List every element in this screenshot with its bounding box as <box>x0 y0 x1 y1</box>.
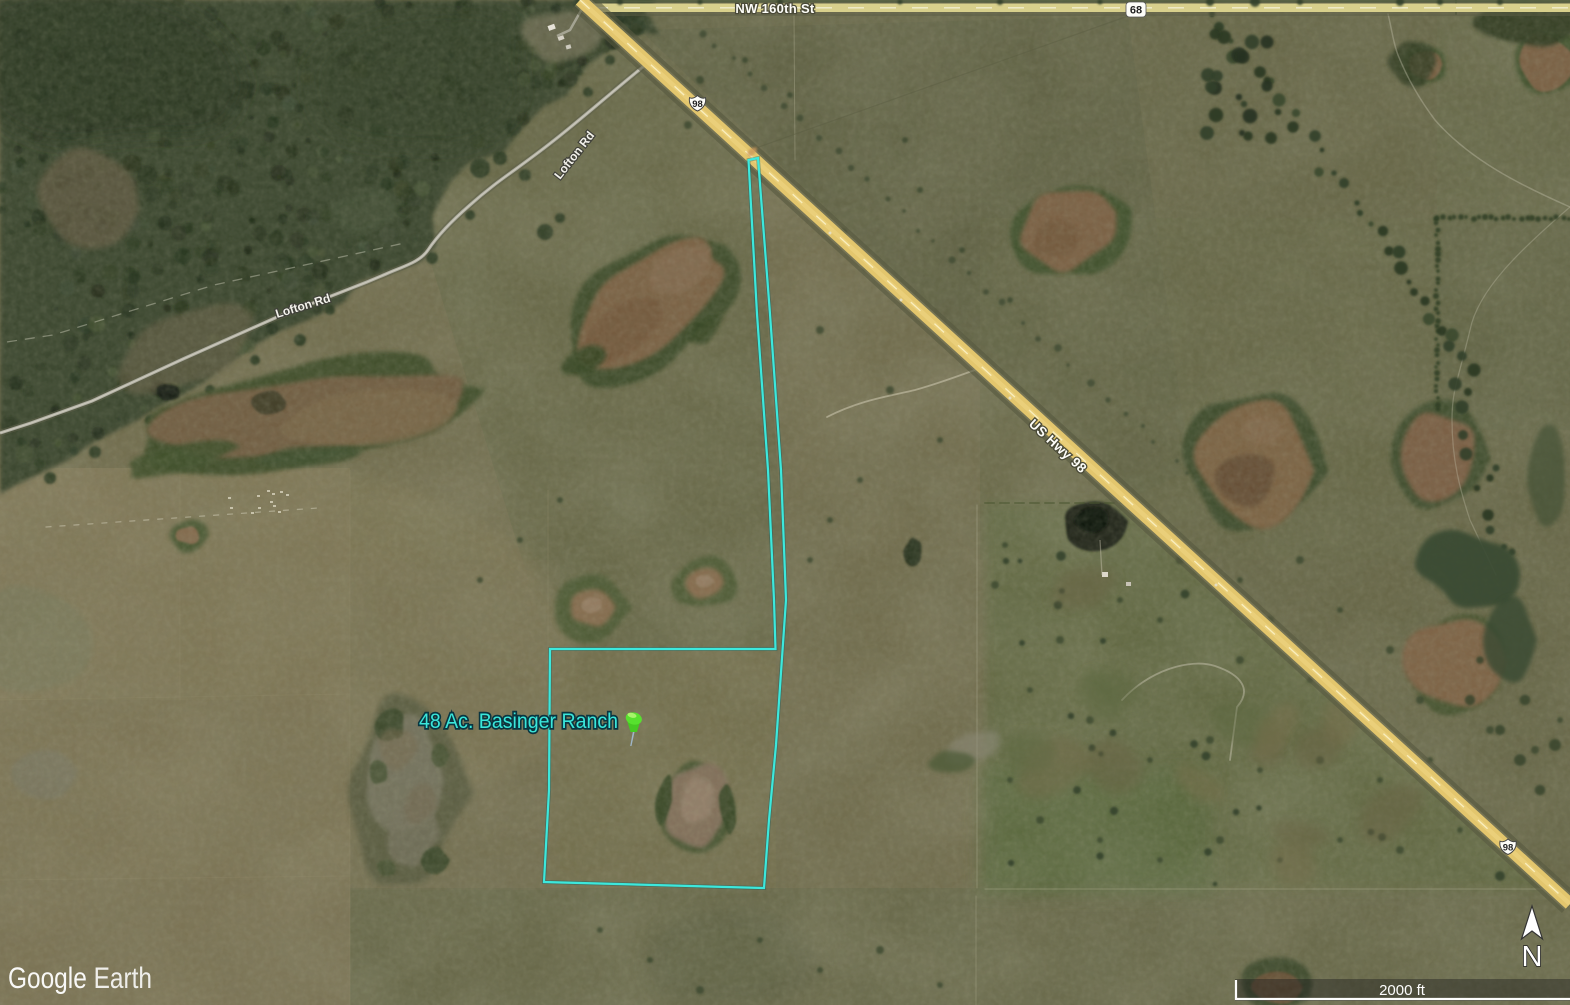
svg-text:68: 68 <box>1130 5 1142 17</box>
svg-text:NW 160th St: NW 160th St <box>735 1 815 16</box>
svg-text:48 Ac. Basinger Ranch: 48 Ac. Basinger Ranch <box>419 710 618 733</box>
svg-text:2000 ft: 2000 ft <box>1379 982 1426 999</box>
svg-text:Google Earth: Google Earth <box>8 962 152 995</box>
svg-text:N: N <box>1522 941 1543 973</box>
svg-text:98: 98 <box>692 99 703 110</box>
svg-text:98: 98 <box>1503 843 1514 854</box>
